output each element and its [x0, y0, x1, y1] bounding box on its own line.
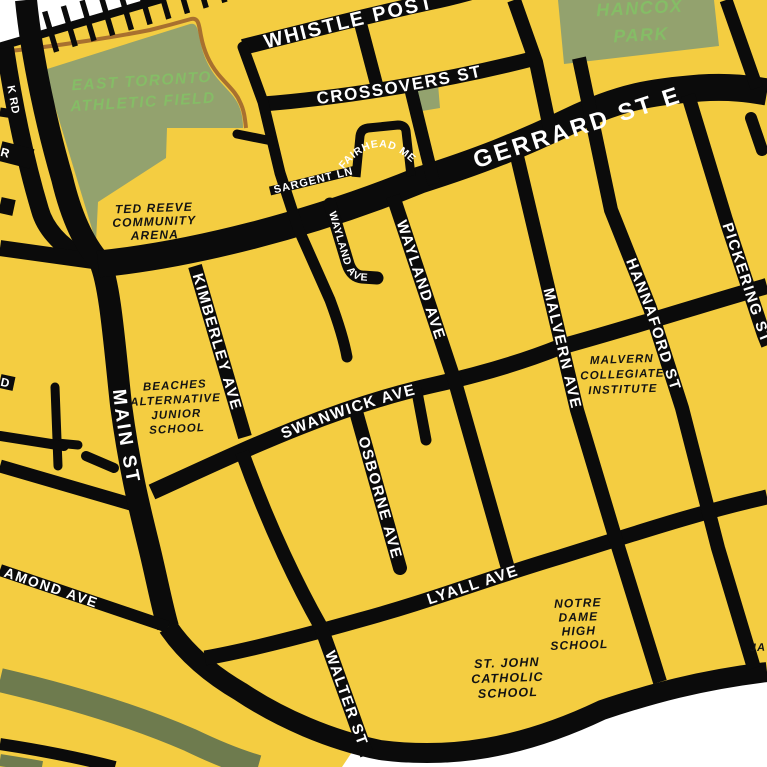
- svg-text:MALVERNCOLLEGIATEINSTITUTE: MALVERNCOLLEGIATEINSTITUTE: [580, 353, 666, 398]
- svg-text:ST. JOHNCATHOLICSCHOOL: ST. JOHNCATHOLICSCHOOL: [470, 655, 544, 702]
- svg-text:JA: JA: [750, 642, 767, 655]
